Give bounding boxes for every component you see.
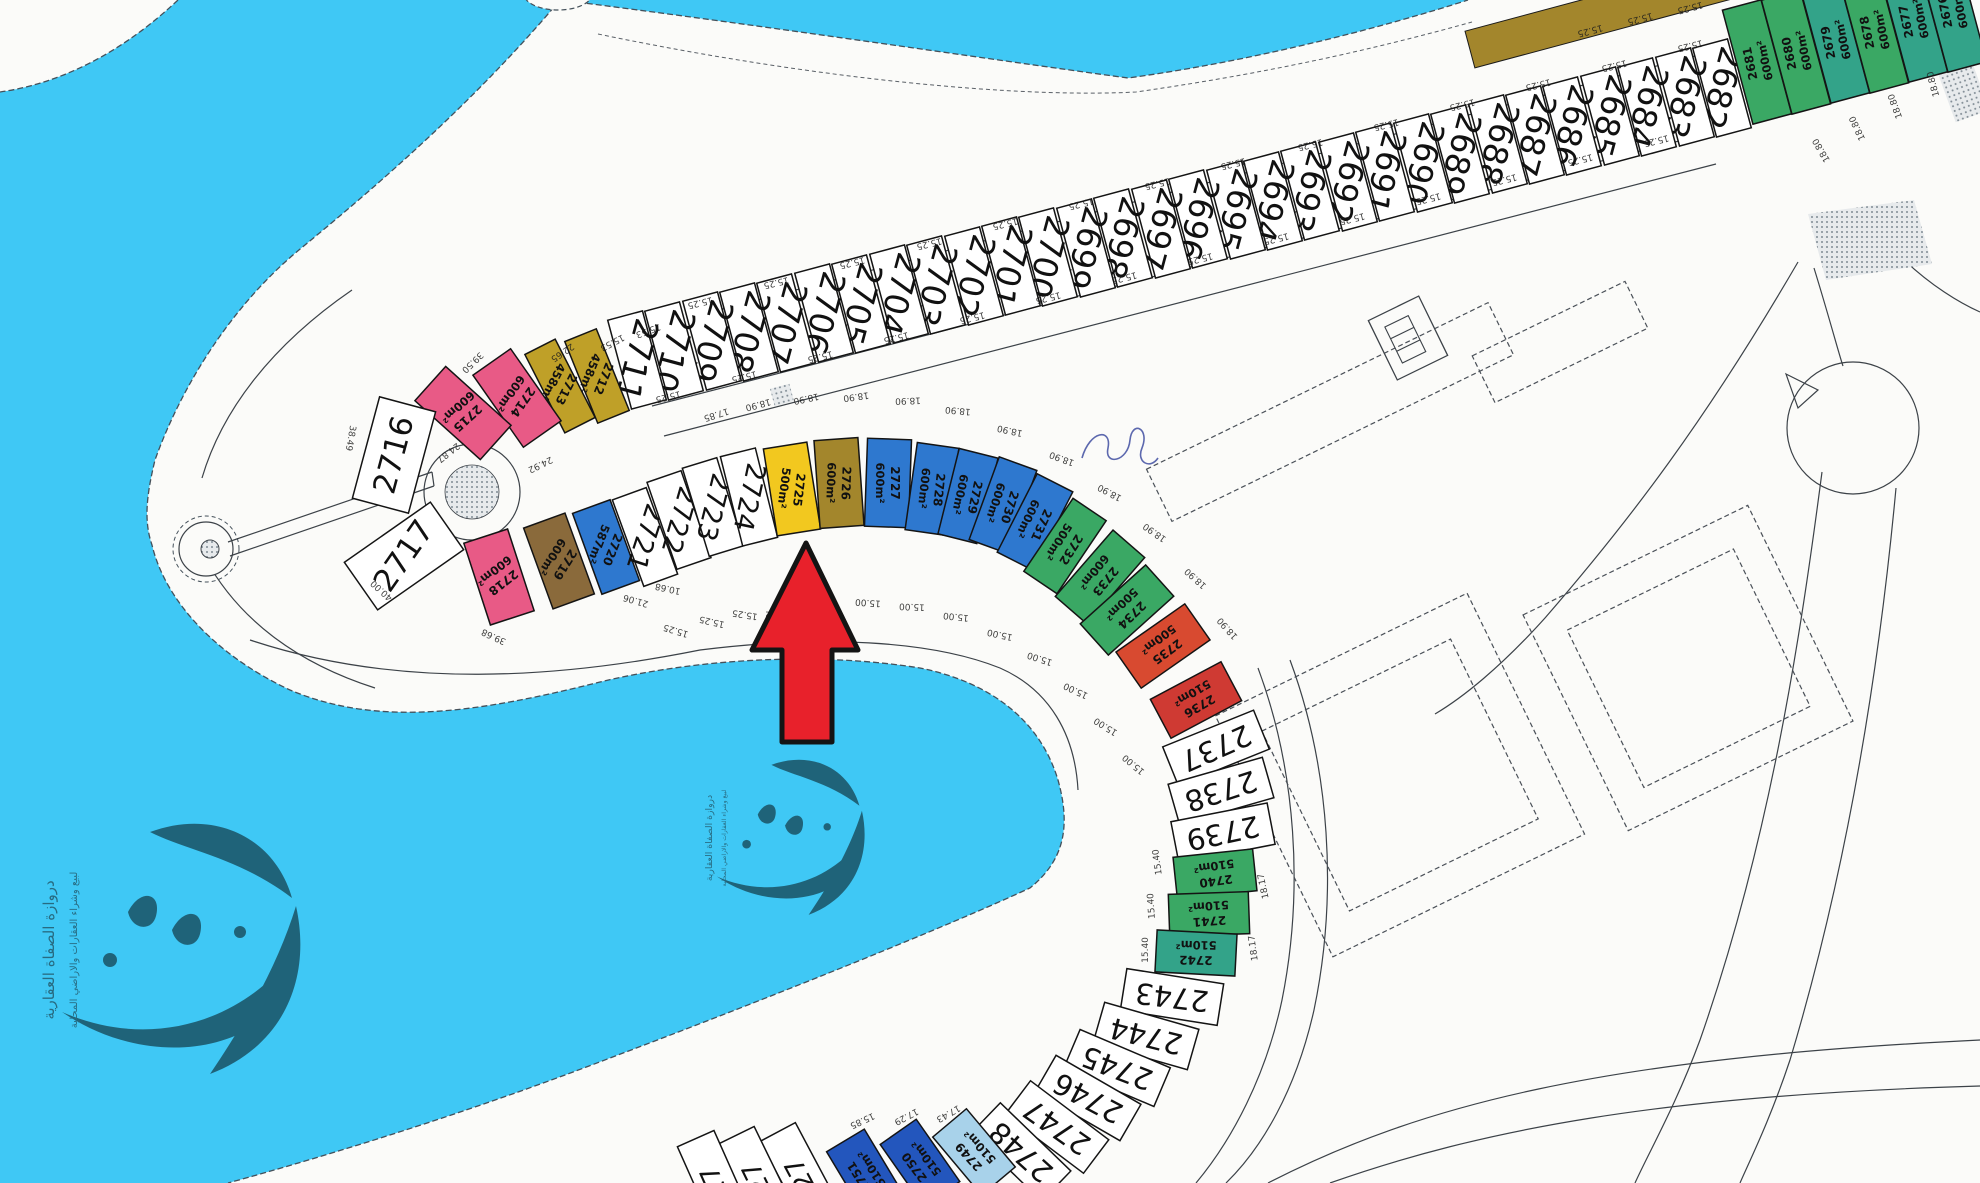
plot-area: 510m² xyxy=(1187,898,1229,915)
dimension-label: 15.40 xyxy=(1141,937,1151,963)
plot-area: 510m² xyxy=(1176,938,1217,953)
dimension-label: 15.40 xyxy=(1146,893,1158,920)
plot-area: 600m² xyxy=(873,462,887,503)
plot-2741: 2741510m² xyxy=(1168,892,1249,937)
plot-number: 2726 xyxy=(838,466,853,500)
plot-number: 2742 xyxy=(1179,953,1213,968)
dimension-label: 15.00 xyxy=(855,596,882,608)
plot-number: 2727 xyxy=(888,466,902,499)
plot-number: 2741 xyxy=(1192,913,1226,929)
map-canvas: دروازة الصفاة العقارية لبيع وشراء العقار… xyxy=(0,0,1980,1183)
plot-2727: 2727600m² xyxy=(864,438,911,527)
dimension-label: 18.90 xyxy=(895,395,921,406)
cul-de-sac-island xyxy=(445,465,499,519)
site-plan-map: دروازة الصفاة العقارية لبيع وشراء العقار… xyxy=(0,0,1980,1183)
dimension-label: 15.00 xyxy=(899,601,925,612)
plot-area: 600m² xyxy=(823,462,838,503)
plot-2726: 2726600m² xyxy=(814,438,864,529)
plot-2742: 2742510m² xyxy=(1155,930,1237,976)
